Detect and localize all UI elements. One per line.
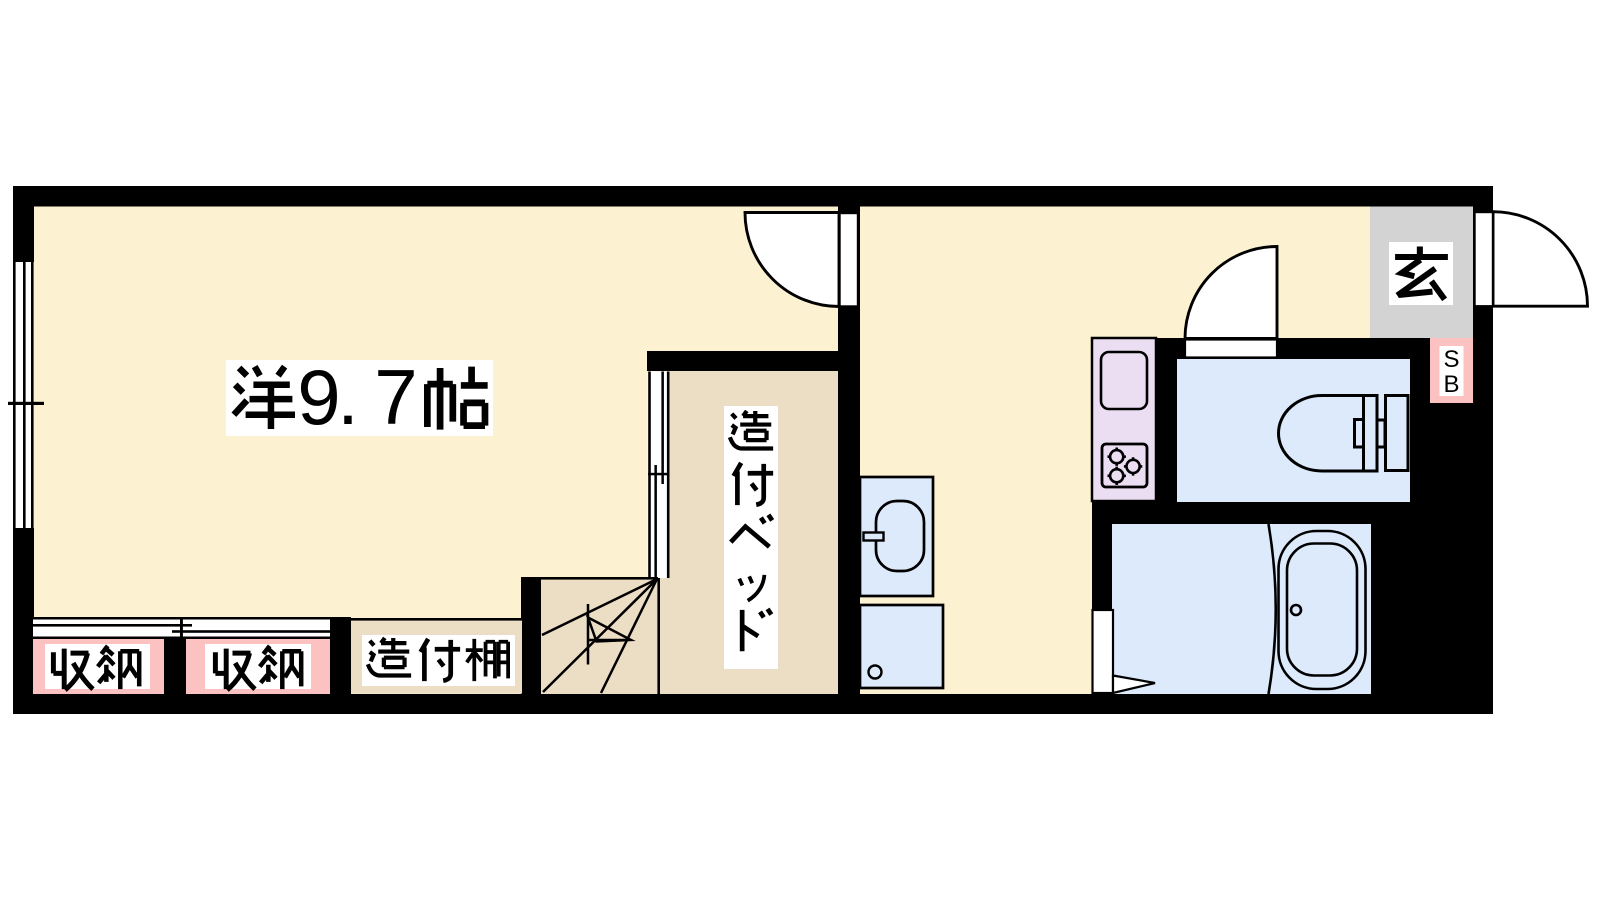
svg-text:S: S — [1443, 346, 1459, 373]
svg-text:B: B — [1443, 371, 1459, 398]
svg-text:.: . — [337, 353, 359, 441]
svg-text:9: 9 — [297, 353, 340, 441]
svg-text:7: 7 — [374, 353, 417, 441]
